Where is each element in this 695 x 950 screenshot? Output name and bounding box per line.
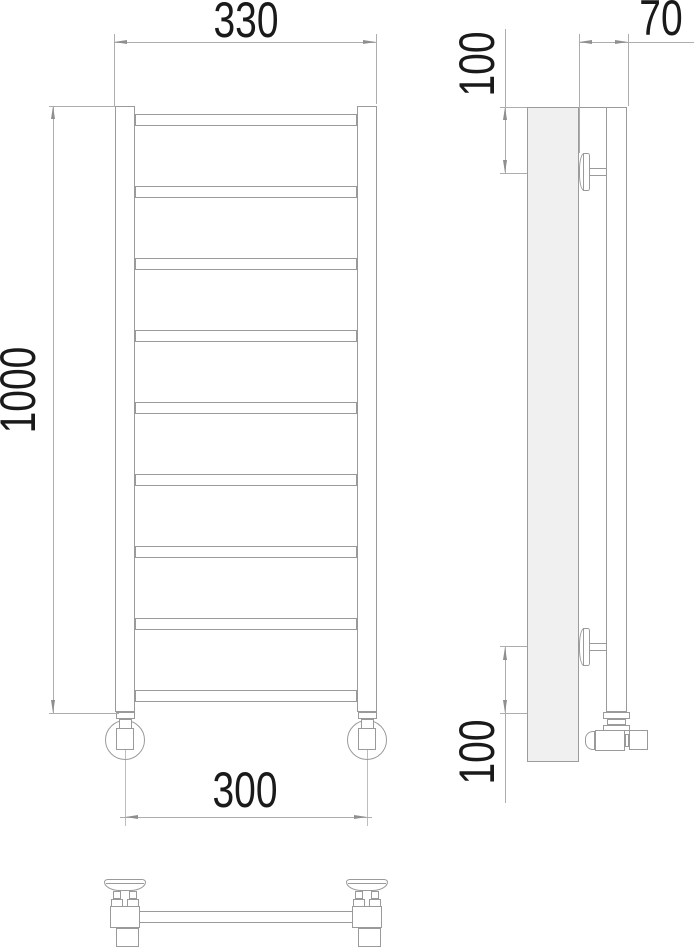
plan-right-stem-b xyxy=(371,891,379,899)
rung xyxy=(135,690,357,702)
dim-300-arrow-left xyxy=(125,815,138,819)
bottom-bracket-stem-lower xyxy=(590,650,606,651)
plan-right-stem-a xyxy=(355,891,363,899)
rung xyxy=(135,402,357,414)
plan-right-bracket-cap xyxy=(346,879,388,891)
plan-right-cap-line xyxy=(348,883,386,884)
dim-100t-label: 100 xyxy=(453,17,501,111)
dim-70-ext-left xyxy=(579,34,580,153)
top-bracket-stem-upper xyxy=(590,168,606,169)
dim-330-ext-right xyxy=(376,34,377,104)
rung xyxy=(135,546,357,558)
dim-1000-ext-top xyxy=(49,106,115,107)
technical-drawing-canvas: 330 1000 300 70 100 xyxy=(0,0,695,950)
dim-100b-label: 100 xyxy=(453,705,501,799)
dim-100t-arrow-down xyxy=(503,160,507,173)
dim-1000-line xyxy=(53,106,54,713)
dim-100b-arrow-down xyxy=(503,700,507,713)
front-left-post xyxy=(115,106,135,712)
plan-left-corner-body xyxy=(110,906,140,928)
front-right-post xyxy=(357,106,377,712)
plan-right-valve-end xyxy=(358,928,381,947)
rung xyxy=(135,618,357,630)
dim-100b-arrow-up xyxy=(503,647,507,660)
dim-70-ext-right xyxy=(628,34,629,106)
plan-left-stem-b xyxy=(129,891,137,899)
top-bracket-flange-line xyxy=(583,153,584,191)
rung xyxy=(135,186,357,198)
side-valve-end-block xyxy=(629,730,648,750)
bottom-bracket-flange-line xyxy=(583,628,584,666)
plan-right-corner-body xyxy=(352,906,382,928)
rung xyxy=(135,258,357,270)
rung xyxy=(135,474,357,486)
bottom-bracket-flange xyxy=(579,628,590,666)
right-foot-collar xyxy=(358,712,377,719)
dim-330-ext-left xyxy=(114,34,115,107)
dim-1000-label: 1000 xyxy=(0,343,42,437)
left-foot-valve-body xyxy=(116,728,134,750)
dim-1000-arrow-bottom xyxy=(51,700,55,713)
dim-1000-arrow-top xyxy=(51,106,55,119)
wall-slab xyxy=(527,107,579,762)
side-tube xyxy=(606,107,627,712)
side-valve-body xyxy=(595,730,625,751)
dim-330-arrow-left xyxy=(114,40,127,44)
side-valve-cap xyxy=(585,731,595,750)
dim-100t-line xyxy=(505,29,506,173)
dim-100t-ext-lower xyxy=(500,173,527,174)
dim-330-arrow-right xyxy=(363,40,376,44)
top-bracket-flange xyxy=(579,153,590,191)
dim-300-label: 300 xyxy=(206,766,284,814)
dim-1000-ext-bottom xyxy=(49,713,119,714)
side-fitting-collar-upper xyxy=(603,712,630,719)
dim-70-arrow-left xyxy=(579,40,592,44)
side-top-edge-line xyxy=(579,107,606,108)
dim-70-label: 70 xyxy=(622,0,695,42)
dim-100t-arrow-up xyxy=(503,107,507,120)
dim-100b-line xyxy=(505,646,506,803)
dim-300-arrow-right xyxy=(354,815,367,819)
plan-left-stem-a xyxy=(113,891,121,899)
rung xyxy=(135,330,357,342)
plan-left-valve-end xyxy=(116,928,139,947)
right-foot-valve-body xyxy=(358,728,376,750)
plan-bottom-tube xyxy=(140,911,352,923)
plan-left-bracket-cap xyxy=(104,879,146,891)
top-bracket-stem-lower xyxy=(590,175,606,176)
dim-330-label: 330 xyxy=(207,0,285,44)
bottom-bracket-stem-upper xyxy=(590,643,606,644)
plan-left-cap-line xyxy=(106,883,144,884)
rung xyxy=(135,114,357,126)
